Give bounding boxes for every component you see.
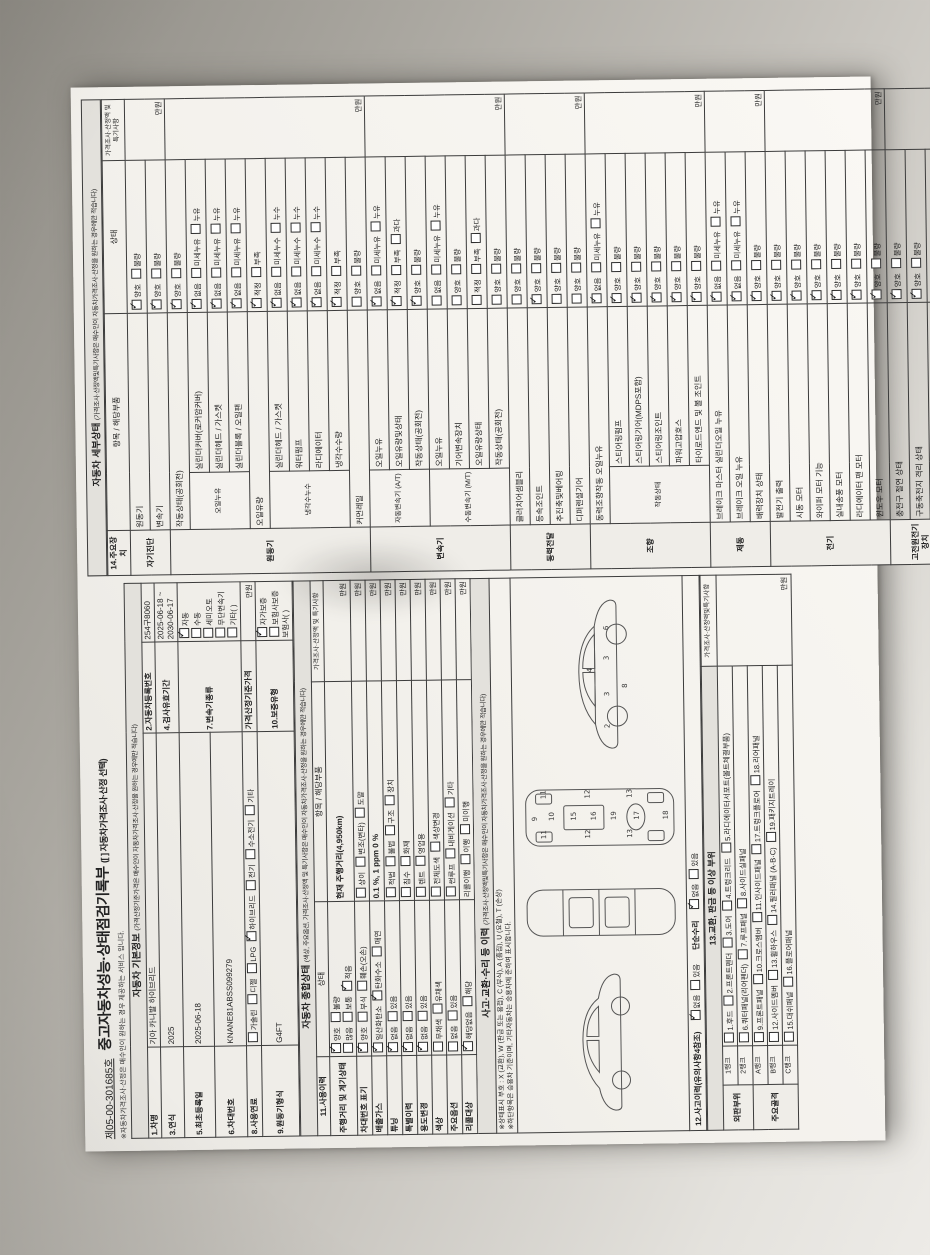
- detail-state-option: 누유: [372, 205, 381, 232]
- comp-row-state: 양호불량많음보통적음: [327, 901, 356, 1056]
- comp-state-option: 훼손(오손): [358, 946, 368, 992]
- checkbox-불량: [330, 1012, 340, 1022]
- comp-state2-option: 많음: [345, 1027, 354, 1054]
- comp-row-label: 특별이력: [401, 1055, 417, 1134]
- checkbox-미세누유: [191, 268, 201, 278]
- checkbox-화재: [400, 856, 410, 866]
- diagram-number-9: 9: [530, 817, 538, 822]
- detail-state-option: 불량: [812, 244, 821, 271]
- detail-state-option: 적정: [333, 281, 342, 308]
- panel-option-label: 15.대쉬패널: [785, 992, 795, 1030]
- checkbox-내비게이션: [445, 849, 455, 859]
- detail-price: 만원: [504, 93, 585, 155]
- checkbox-미세누수: [291, 267, 301, 277]
- checkbox-7.루프패널: [737, 949, 747, 959]
- detail-state-option-label: 누유: [372, 205, 381, 219]
- checkbox-렌트: [416, 887, 426, 897]
- checkbox-기타: [444, 797, 454, 807]
- panel-option: 14.필러패널 (A·B·C): [768, 847, 778, 926]
- detail-state-option-label: 양호: [493, 279, 502, 293]
- comp-item-option-label: 내비게이션: [447, 812, 456, 847]
- checkbox-4.트렁크리드: [722, 901, 732, 911]
- basic-label: 10.보증유형: [256, 640, 294, 732]
- checkbox-불량: [831, 259, 841, 269]
- detail-state: 없음미세누유누유: [225, 159, 247, 312]
- comp-state-line2: 많음보통적음: [341, 904, 355, 1054]
- detail-state-option-label: 양호: [833, 274, 842, 288]
- accident-price-header: 가격조사·산정액및특기사항: [700, 575, 717, 666]
- basic-option-label: 전기: [247, 864, 256, 878]
- checkbox-매연: [371, 946, 381, 956]
- detail-state-option: 과다: [472, 217, 481, 244]
- checkbox-양호: [651, 292, 661, 302]
- comp-state-option: 양호: [360, 1027, 369, 1054]
- detail-state-option: 과다: [392, 219, 401, 246]
- comp-row-price: 만원: [395, 579, 411, 680]
- checkbox-과다: [470, 233, 480, 243]
- detail-state: 양호불량: [505, 155, 527, 308]
- checkbox-보통: [342, 1012, 352, 1022]
- panel-option-label: 1.후드: [725, 1010, 734, 1030]
- panel-option: 13.휠하우스: [769, 930, 779, 981]
- basic-value: 254구8060: [141, 583, 155, 642]
- checkbox-전기: [246, 880, 256, 890]
- detail-price: 만원: [764, 89, 885, 152]
- comp-item-option-label: 기타: [446, 781, 455, 795]
- basic-value: G4FT: [257, 731, 298, 1045]
- checkbox-9.프론트패널: [754, 1032, 764, 1042]
- detail-state-option: 양호: [853, 274, 862, 301]
- comp-state-option: 유채색: [434, 981, 443, 1015]
- detail-price: 만원: [164, 96, 365, 160]
- panel-option: 1.후드: [725, 1010, 734, 1043]
- comp-state-option: 해당: [464, 981, 473, 1008]
- detail-item: 실린더블록 / 오일팬: [227, 312, 249, 472]
- detail-state-option: 양호: [353, 281, 362, 308]
- detail-price: 만원: [704, 90, 765, 152]
- panel-rank-table: 13.교환, 판금 등 이상 부위 가격조사·산정액및특기사항 외판부위1랭크1…: [700, 574, 799, 1131]
- detail-state: 적정부족과다: [465, 155, 487, 308]
- detail-state-option: 불량: [452, 249, 461, 276]
- diagram-number-6: 6: [602, 625, 610, 630]
- simple-repair-option-label: 있음: [690, 853, 699, 867]
- detail-state-option-label: 불량: [412, 249, 421, 263]
- comp-state-option-label: 없음: [419, 1026, 428, 1040]
- detail-state-option: 양호: [633, 277, 642, 304]
- checkbox-구조: [385, 826, 395, 836]
- detail-state-option-label: 불량: [452, 249, 461, 263]
- comp-item-option: 내비게이션: [447, 812, 457, 860]
- panel-option: 8.사이드실패널: [738, 848, 748, 909]
- diagram-number-13: 13: [625, 789, 633, 798]
- basic-option-label: 자가보증: [259, 597, 268, 625]
- basic-option-label: 기타( ): [229, 604, 238, 625]
- basic-option: 기타: [246, 789, 255, 816]
- basic-value: 2025-06-18 ~ 2030-06-17: [154, 583, 178, 642]
- comp-item-option: 썬루프: [447, 864, 456, 898]
- checkbox-기타( ): [227, 627, 237, 637]
- detail-state: 없음미세누유누유: [585, 154, 607, 307]
- comp-item-option-label: 미이행: [461, 801, 470, 822]
- detail-state-option-label: 양호: [133, 284, 142, 298]
- detail-state: 적정부족: [325, 157, 347, 310]
- detail-subgroup: 자동변속기 (A/T): [369, 469, 430, 527]
- detail-state-option: 불량: [532, 247, 541, 274]
- basic-option-label: 하이브리드: [248, 895, 257, 930]
- basic-option: 자동: [181, 612, 190, 639]
- detail-subgroup: 냉각수누수: [269, 470, 350, 528]
- checkbox-기타: [245, 805, 255, 815]
- panel-option: 3.도어: [724, 916, 733, 949]
- comp-state-option: 해당없음: [464, 1011, 474, 1052]
- detail-state-option: 적정: [473, 279, 482, 306]
- checkbox-누유: [730, 216, 740, 226]
- detail-state-option: 양호: [173, 283, 182, 310]
- detail-state-option: 불량: [772, 244, 781, 271]
- comp-state-option-label: 해당: [464, 981, 473, 995]
- checkbox-불량: [131, 269, 141, 279]
- diagram-number-11: 11: [540, 830, 548, 839]
- detail-state-option: 양호: [153, 284, 162, 311]
- panel-option-label: 10.크로스멤버: [754, 927, 764, 972]
- detail-state-option: 양호: [413, 280, 422, 307]
- comp-state-option: 무채색: [434, 1019, 443, 1053]
- basic-label: 1.차명: [147, 1047, 161, 1138]
- checkbox-수소전기: [245, 849, 255, 859]
- detail-price: 만원: [364, 94, 505, 157]
- checkbox-미세누유: [591, 262, 601, 272]
- checkbox-불량: [571, 263, 581, 273]
- panel-option: 16.플로어패널: [784, 930, 794, 988]
- checkbox-없음: [271, 298, 281, 308]
- rank-category: 외판부위: [723, 1085, 754, 1130]
- detail-state-option-label: 불량: [852, 243, 861, 257]
- comp-state-option: 없음: [390, 1026, 399, 1053]
- panel-option-label: 16.플로어패널: [784, 930, 794, 975]
- checkbox-영업용: [415, 856, 425, 866]
- detail-state: 양호불량: [525, 155, 547, 308]
- detail-state-option: 부족: [252, 251, 261, 278]
- detail-state-option: 양호: [613, 277, 622, 304]
- comp-state-option: 일산화탄소: [374, 1006, 384, 1054]
- detail-state-option-label: 양호: [353, 281, 362, 295]
- detail-state-option-label: 누유: [732, 200, 741, 214]
- checkbox-있음: [689, 869, 699, 879]
- checkbox-과다: [390, 234, 400, 244]
- comp-item-text: 현재 주행거리(4,950km): [335, 816, 345, 899]
- detail-state-option: 불량: [672, 245, 681, 272]
- detail-state: 양호불량: [545, 154, 567, 307]
- basic-label: 6.차대번호: [215, 1046, 248, 1137]
- accident-heading-text: 사고·교환·수리 등 이력: [480, 927, 492, 1017]
- basic-option-label: 세미오토: [205, 598, 214, 626]
- comp-item-option-label: 영업용: [417, 833, 426, 854]
- panel-option-label: 14.필러패널 (A·B·C): [768, 847, 778, 913]
- detail-state-option-label: 불량: [912, 242, 921, 256]
- detail-state: 양호불량: [785, 151, 807, 304]
- detail-state-option-label: 양호: [693, 276, 702, 290]
- detail-state-option: 양호: [493, 279, 502, 306]
- checkbox-있음: [402, 1011, 412, 1021]
- checkbox-변조(변타): [355, 857, 365, 867]
- detail-state-option-label: 불량: [672, 245, 681, 259]
- detail-state: 양호불량: [885, 149, 907, 302]
- detail-state: 양호불량: [905, 149, 927, 302]
- checkbox-불량: [671, 261, 681, 271]
- detail-group: 제동: [710, 521, 771, 567]
- checkbox-세미오토: [203, 628, 213, 638]
- comp-item-option: 색상변경: [432, 812, 442, 853]
- detail-price: 만원: [124, 99, 165, 161]
- diagram-number-16: 16: [589, 811, 597, 821]
- basic-option: 디젤: [249, 979, 258, 1006]
- detail-state: 없음미세누유누유: [425, 156, 447, 309]
- checkbox-8.사이드실패널: [737, 898, 747, 908]
- detail-item: 실린더헤드 / 가스켓: [267, 311, 289, 471]
- detail-state-option-label: 누유: [592, 202, 601, 216]
- panel-option-label: 6.쿼터패널(리어펜더): [740, 964, 750, 1031]
- detail-state-option-label: 누유: [192, 208, 201, 222]
- checkbox-가솔린: [248, 1032, 258, 1042]
- panel-option: 5.라디에이터서포트(볼트체결부품): [721, 733, 732, 854]
- checkbox-무채색: [433, 1042, 443, 1052]
- detail-state-option-label: 미세누유: [232, 238, 241, 266]
- detail-state-option-label: 양호: [153, 284, 162, 298]
- detail-state-option: 미세누수: [292, 237, 302, 278]
- diagram-number-10: 10: [547, 812, 555, 821]
- checkbox-불량: [651, 262, 661, 272]
- detail-state: 양호불량: [605, 153, 627, 306]
- detail-state-option-label: 불량: [512, 248, 521, 262]
- checkbox-양호: [331, 1043, 341, 1053]
- panel-option: 4.트렁크리드: [723, 858, 733, 912]
- detail-state-option-label: 양호: [573, 278, 582, 292]
- comp-item-option: 변조(변타): [357, 822, 367, 868]
- comp-item-prefix: 리콜이행: [462, 870, 471, 898]
- checkbox-불량: [751, 260, 761, 270]
- checkbox-불량: [791, 260, 801, 270]
- page-title-main: 중고자동차성능·상태점검기록부: [95, 866, 114, 1050]
- detail-state: 양호불량: [685, 152, 707, 305]
- basic-value: 자가보증보험사보증보험사( ): [255, 581, 293, 641]
- detail-state-option: 부족: [332, 250, 341, 277]
- panel-option: 10.크로스멤버: [754, 927, 764, 985]
- rank-price: 만원: [716, 574, 792, 666]
- basic-option-label: 기타: [246, 789, 255, 803]
- detail-state-option-label: 불량: [612, 246, 621, 260]
- checkbox-불량: [531, 263, 541, 273]
- comp-row-price: 만원: [380, 580, 396, 681]
- detail-group: 조향: [590, 522, 711, 569]
- comp-item-option-label: 화재: [402, 840, 411, 854]
- detail-state-option: 미세누유: [432, 235, 442, 276]
- right-column: 자동차 세부상태 (가격조사·산정액및특기사항은 매수인이 자동차가격조사·산정…: [81, 89, 868, 577]
- detail-state-option-label: 불량: [132, 253, 141, 267]
- diagram-number-12: 12: [584, 830, 592, 839]
- comp-state-option: 있음: [419, 995, 428, 1022]
- detail-state-option: 없음: [593, 277, 602, 304]
- comp-item-option: 기타: [446, 781, 455, 808]
- panel-option-label: 2.프론트펜더: [724, 953, 734, 994]
- comprehensive-heading-note: (색상, 주요옵션, 가격조사·산정액 및 특기사항은 매수인이 자동차가격조사…: [300, 688, 311, 962]
- panel-option: 11.인사이드패널: [753, 859, 763, 923]
- checkbox-누유: [230, 223, 240, 233]
- checkbox-LPG: [247, 964, 257, 974]
- detail-col-state: 상태: [102, 160, 127, 313]
- checkbox-장치: [384, 795, 394, 805]
- basic-option-label: 디젤: [249, 979, 258, 993]
- checkbox-미이행: [460, 824, 470, 834]
- detail-state-option-label: 불량: [832, 243, 841, 257]
- basic-info-heading-note: (가격산정기준가격은 매수인이 자동차가격조사·산정을 원하는 경우에만 적습니…: [132, 724, 142, 930]
- detail-item: 워터펌프: [287, 311, 309, 471]
- detail-state-option-label: 불량: [892, 242, 901, 256]
- detail-item: 기어변속장치: [447, 309, 469, 469]
- detail-state-option-label: 없음: [273, 282, 282, 296]
- comp-item-option-label: 불법: [387, 841, 396, 855]
- detail-state-option-label: 양호: [453, 279, 462, 293]
- comp-state-option-label: 일산화탄소: [374, 1006, 383, 1041]
- checkbox-19.패키지트레이: [766, 832, 776, 842]
- comp-state-option-label: 있음: [389, 996, 398, 1010]
- checkbox-수동: [191, 628, 201, 638]
- detail-item: 오일유량및상태: [387, 309, 409, 469]
- checkbox-자동: [179, 628, 189, 638]
- checkbox-양호: [151, 299, 161, 309]
- detail-state: 양호불량: [625, 153, 647, 306]
- detail-state-option: 불량: [412, 249, 421, 276]
- checkbox-15.대쉬패널: [784, 1032, 794, 1042]
- comp-row-price: 만원: [410, 579, 426, 680]
- detail-state-option-label: 과다: [392, 219, 401, 233]
- detail-state-option: 없음: [193, 283, 202, 310]
- basic-option-label: 수동: [193, 612, 202, 626]
- detail-state: 양호불량: [825, 150, 847, 303]
- comp-state-option: 없음: [449, 1026, 458, 1053]
- checkbox-양호: [551, 294, 561, 304]
- checkbox-불량: [151, 269, 161, 279]
- comp-item-option-label: 장치: [386, 779, 395, 793]
- checkbox-누수: [270, 222, 280, 232]
- detail-state-option-label: 미세누유: [212, 238, 221, 266]
- checkbox-불량: [171, 268, 181, 278]
- comp-item-option-label: 구조: [386, 810, 395, 824]
- panel-option-label: 4.트렁크리드: [723, 858, 733, 899]
- checkbox-양호: [771, 291, 781, 301]
- detail-state-option-label: 불량: [152, 253, 161, 267]
- detail-state-option-label: 불량: [752, 244, 761, 258]
- detail-state-option-label: 미세누유: [732, 231, 741, 259]
- detail-state-option: 미세누수: [272, 237, 282, 278]
- checkbox-양호: [491, 295, 501, 305]
- detail-state: 양호불량: [865, 150, 887, 303]
- comp-state-option-label: 불량: [332, 996, 341, 1010]
- comp-item-option-label: 렌트: [417, 871, 426, 885]
- diagram-number-18: 18: [661, 811, 669, 820]
- detail-state-option-label: 미세누유: [432, 235, 441, 263]
- basic-option-label: 무단변속기: [217, 591, 226, 626]
- detail-item: 실린더헤드 / 가스켓: [207, 312, 229, 472]
- checkbox-불량: [491, 264, 501, 274]
- detail-state-option-label: 부족: [392, 249, 401, 263]
- checkbox-하이브리드: [246, 932, 256, 942]
- detail-state-option: 미세누수: [312, 237, 322, 278]
- comp-item-option: 이행: [462, 839, 471, 866]
- comp-state-option-label: 부식: [359, 996, 368, 1010]
- rank-name: A랭크: [752, 1046, 768, 1085]
- comp-row-label: 리콜대상: [461, 1055, 477, 1134]
- detail-state-option: 미세누유: [372, 236, 382, 277]
- basic-suffix: 보험사( ): [281, 610, 290, 638]
- checkbox-누수: [310, 222, 320, 232]
- panel-option: 18.리어패널: [751, 735, 761, 786]
- panel-option: 9.프론트패널: [755, 989, 765, 1043]
- document-number: 제05-00-301685호: [100, 1058, 116, 1139]
- detail-state-option: 없음: [373, 280, 382, 307]
- basic-label: 2.자동차등록번호: [142, 642, 156, 733]
- detail-state-option-label: 미세누유: [192, 238, 201, 266]
- simple-repair-options: 없음있음: [688, 849, 701, 911]
- checkbox-있음: [690, 980, 700, 990]
- detail-state-option-label: 누유: [232, 207, 241, 221]
- checkbox-미세누수: [311, 266, 321, 276]
- checkbox-불량: [611, 262, 621, 272]
- checkbox-5.라디에이터서포트(볼트체결부품): [721, 843, 731, 853]
- detail-state-option: 양호: [893, 273, 902, 300]
- panel-option-label: 17.트렁크플로어: [752, 790, 762, 842]
- checkbox-없음: [403, 1042, 413, 1052]
- comp-item-option: 장치: [386, 779, 395, 806]
- detail-state: 없음미세누수누수: [305, 158, 327, 311]
- accident-history-option-label: 없음: [692, 995, 701, 1009]
- detail-state-option: 부족: [392, 249, 401, 276]
- comp-state-option: 있음: [389, 996, 398, 1023]
- checkbox-양호: [811, 290, 821, 300]
- detail-state-option-label: 없음: [733, 275, 742, 289]
- checkbox-탄화수소: [372, 991, 382, 1001]
- comp-state-option: 양호: [333, 1027, 342, 1054]
- checkbox-많음: [343, 1043, 353, 1053]
- detail-state-option-label: 양호: [813, 274, 822, 288]
- panel-option: 19.패키지트레이: [767, 779, 777, 844]
- detail-state: 없음미세누수누수: [265, 158, 287, 311]
- basic-option: LPG: [248, 947, 257, 975]
- detail-state: 양호불량: [445, 156, 467, 309]
- detail-state-option: 누유: [732, 200, 741, 227]
- detail-state-option-label: 불량: [792, 244, 801, 258]
- panel-option: 2.프론트펜더: [724, 953, 734, 1007]
- comp-item-option-label: 변조(변타): [357, 822, 366, 855]
- detail-state-option: 불량: [852, 243, 861, 270]
- panel-option-label: 12.사이드멤버: [770, 985, 780, 1030]
- comp-row-label: 배출가스: [371, 1056, 387, 1135]
- car-diagram-top: [520, 876, 681, 948]
- checkbox-미세누유: [371, 266, 381, 276]
- diagram-number-17: 17: [632, 811, 640, 820]
- detail-state-option: 양호: [453, 279, 462, 306]
- car-diagram-side-numbered: 233468: [561, 590, 633, 759]
- comp-state-option-label: 양호: [333, 1027, 342, 1041]
- checkbox-적정: [471, 295, 481, 305]
- comp-state-option-label: 있음: [419, 995, 428, 1009]
- detail-state: 없음미세누유누유: [365, 157, 387, 310]
- detail-group: 원동기: [170, 527, 371, 575]
- comp-state-option-label: 해당없음: [464, 1011, 473, 1039]
- detail-state-option-label: 불량: [652, 246, 661, 260]
- detail-item: 작동상태(공회전): [407, 309, 429, 469]
- detail-state-option: 미세누유: [212, 238, 222, 279]
- comp-row-label: 차대번호 표기: [356, 1056, 372, 1135]
